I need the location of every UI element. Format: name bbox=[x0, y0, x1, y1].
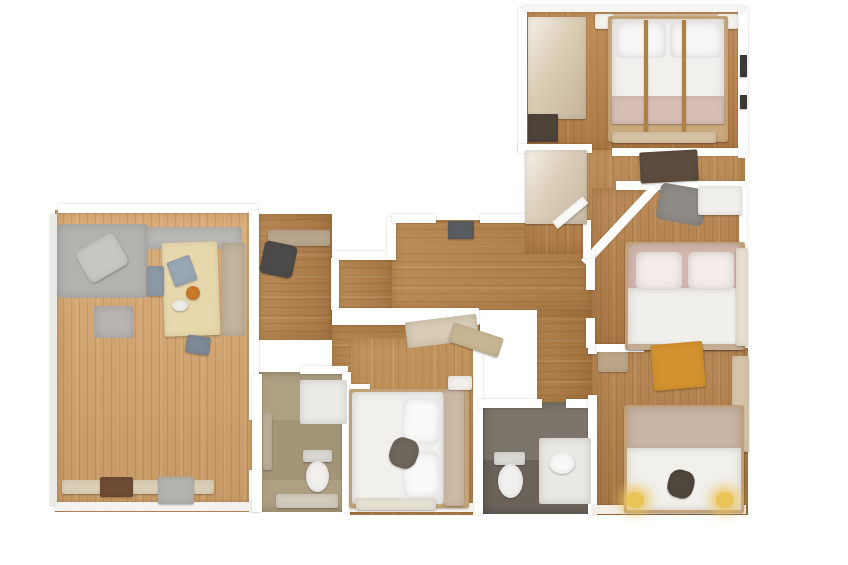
wall-hall-top-b bbox=[480, 214, 526, 223]
wall-center-bedroom-right bbox=[473, 338, 483, 515]
bedroom-center-nightstand bbox=[448, 376, 472, 390]
wall-hall-top-left bbox=[332, 251, 394, 260]
bedroom-br-clutter bbox=[598, 352, 628, 372]
bedroom-center-headboard bbox=[444, 390, 464, 506]
bowl-on-table bbox=[186, 286, 200, 300]
office-chair bbox=[259, 240, 298, 279]
bench-sideboard bbox=[221, 243, 245, 336]
bedroom-br-desk-orange bbox=[650, 341, 706, 391]
bedroom-br-lamp-right bbox=[716, 492, 734, 508]
bedroom-top-bench bbox=[612, 132, 716, 143]
plate-on-table bbox=[172, 300, 188, 311]
bedroom-center-bench bbox=[356, 498, 436, 510]
bedroom-br-headboard bbox=[627, 407, 741, 451]
wall-bedtop-top bbox=[523, 5, 745, 12]
bedroom-top-dark-box bbox=[528, 114, 558, 142]
bedroom-mid-pillow-left bbox=[636, 252, 682, 290]
wall-hall-top-a bbox=[392, 214, 436, 223]
bedroom-br-lamp-left bbox=[626, 492, 644, 508]
dining-chair-left bbox=[147, 266, 164, 296]
bedroom-top-pillow-right bbox=[670, 22, 722, 58]
wall-living-left bbox=[50, 214, 57, 506]
wall-bathbeige-top bbox=[300, 366, 348, 374]
bedroom-mid-duvet bbox=[628, 288, 742, 348]
wall-bedtop-right bbox=[738, 8, 748, 158]
wall-bathgray-top-a bbox=[478, 399, 542, 408]
floorplan-canvas bbox=[0, 0, 848, 565]
wall-hall-left-seg bbox=[331, 258, 339, 310]
entry-closet bbox=[525, 150, 587, 224]
bathroom-gray-sink bbox=[549, 452, 575, 474]
dark-mat bbox=[100, 477, 133, 497]
bedroom-mid-pillow-right bbox=[688, 252, 734, 290]
bedroom-top-wardrobe bbox=[528, 17, 586, 119]
bathroom-beige-towel-rail bbox=[263, 412, 272, 470]
entry-desk-dark bbox=[639, 150, 699, 184]
wall-bathbeige-left bbox=[252, 374, 262, 512]
bathroom-gray-toilet-bowl bbox=[498, 464, 523, 498]
ottoman bbox=[94, 306, 134, 338]
bathroom-beige-shower bbox=[300, 380, 347, 424]
bathroom-beige-vanity bbox=[276, 494, 338, 508]
wall-bedtop-left bbox=[518, 8, 527, 150]
entry-desk-white bbox=[698, 186, 742, 215]
entry-doormat bbox=[448, 221, 474, 239]
wall-bedmid-left-b bbox=[586, 318, 595, 348]
wall-hall-entry-vertical bbox=[583, 220, 591, 258]
bedroom-top-bed-foot-band bbox=[612, 96, 724, 124]
gray-storage-box bbox=[158, 477, 194, 504]
wall-hall-step bbox=[387, 217, 396, 260]
wall-living-bottom bbox=[55, 502, 258, 511]
wall-living-top bbox=[58, 204, 258, 213]
bedroom-top-wall-flecks-b bbox=[740, 95, 747, 109]
bedroom-top-bedpost-right bbox=[682, 20, 686, 142]
bedroom-mid-curtain bbox=[736, 248, 748, 346]
dining-chair-bottom bbox=[185, 334, 211, 355]
bedroom-top-wall-flecks-a bbox=[740, 55, 747, 77]
bathroom-beige-toilet-bowl bbox=[306, 461, 329, 492]
bedroom-top-bedpost-left bbox=[644, 20, 648, 142]
bedroom-top-pillow-left bbox=[616, 22, 666, 58]
